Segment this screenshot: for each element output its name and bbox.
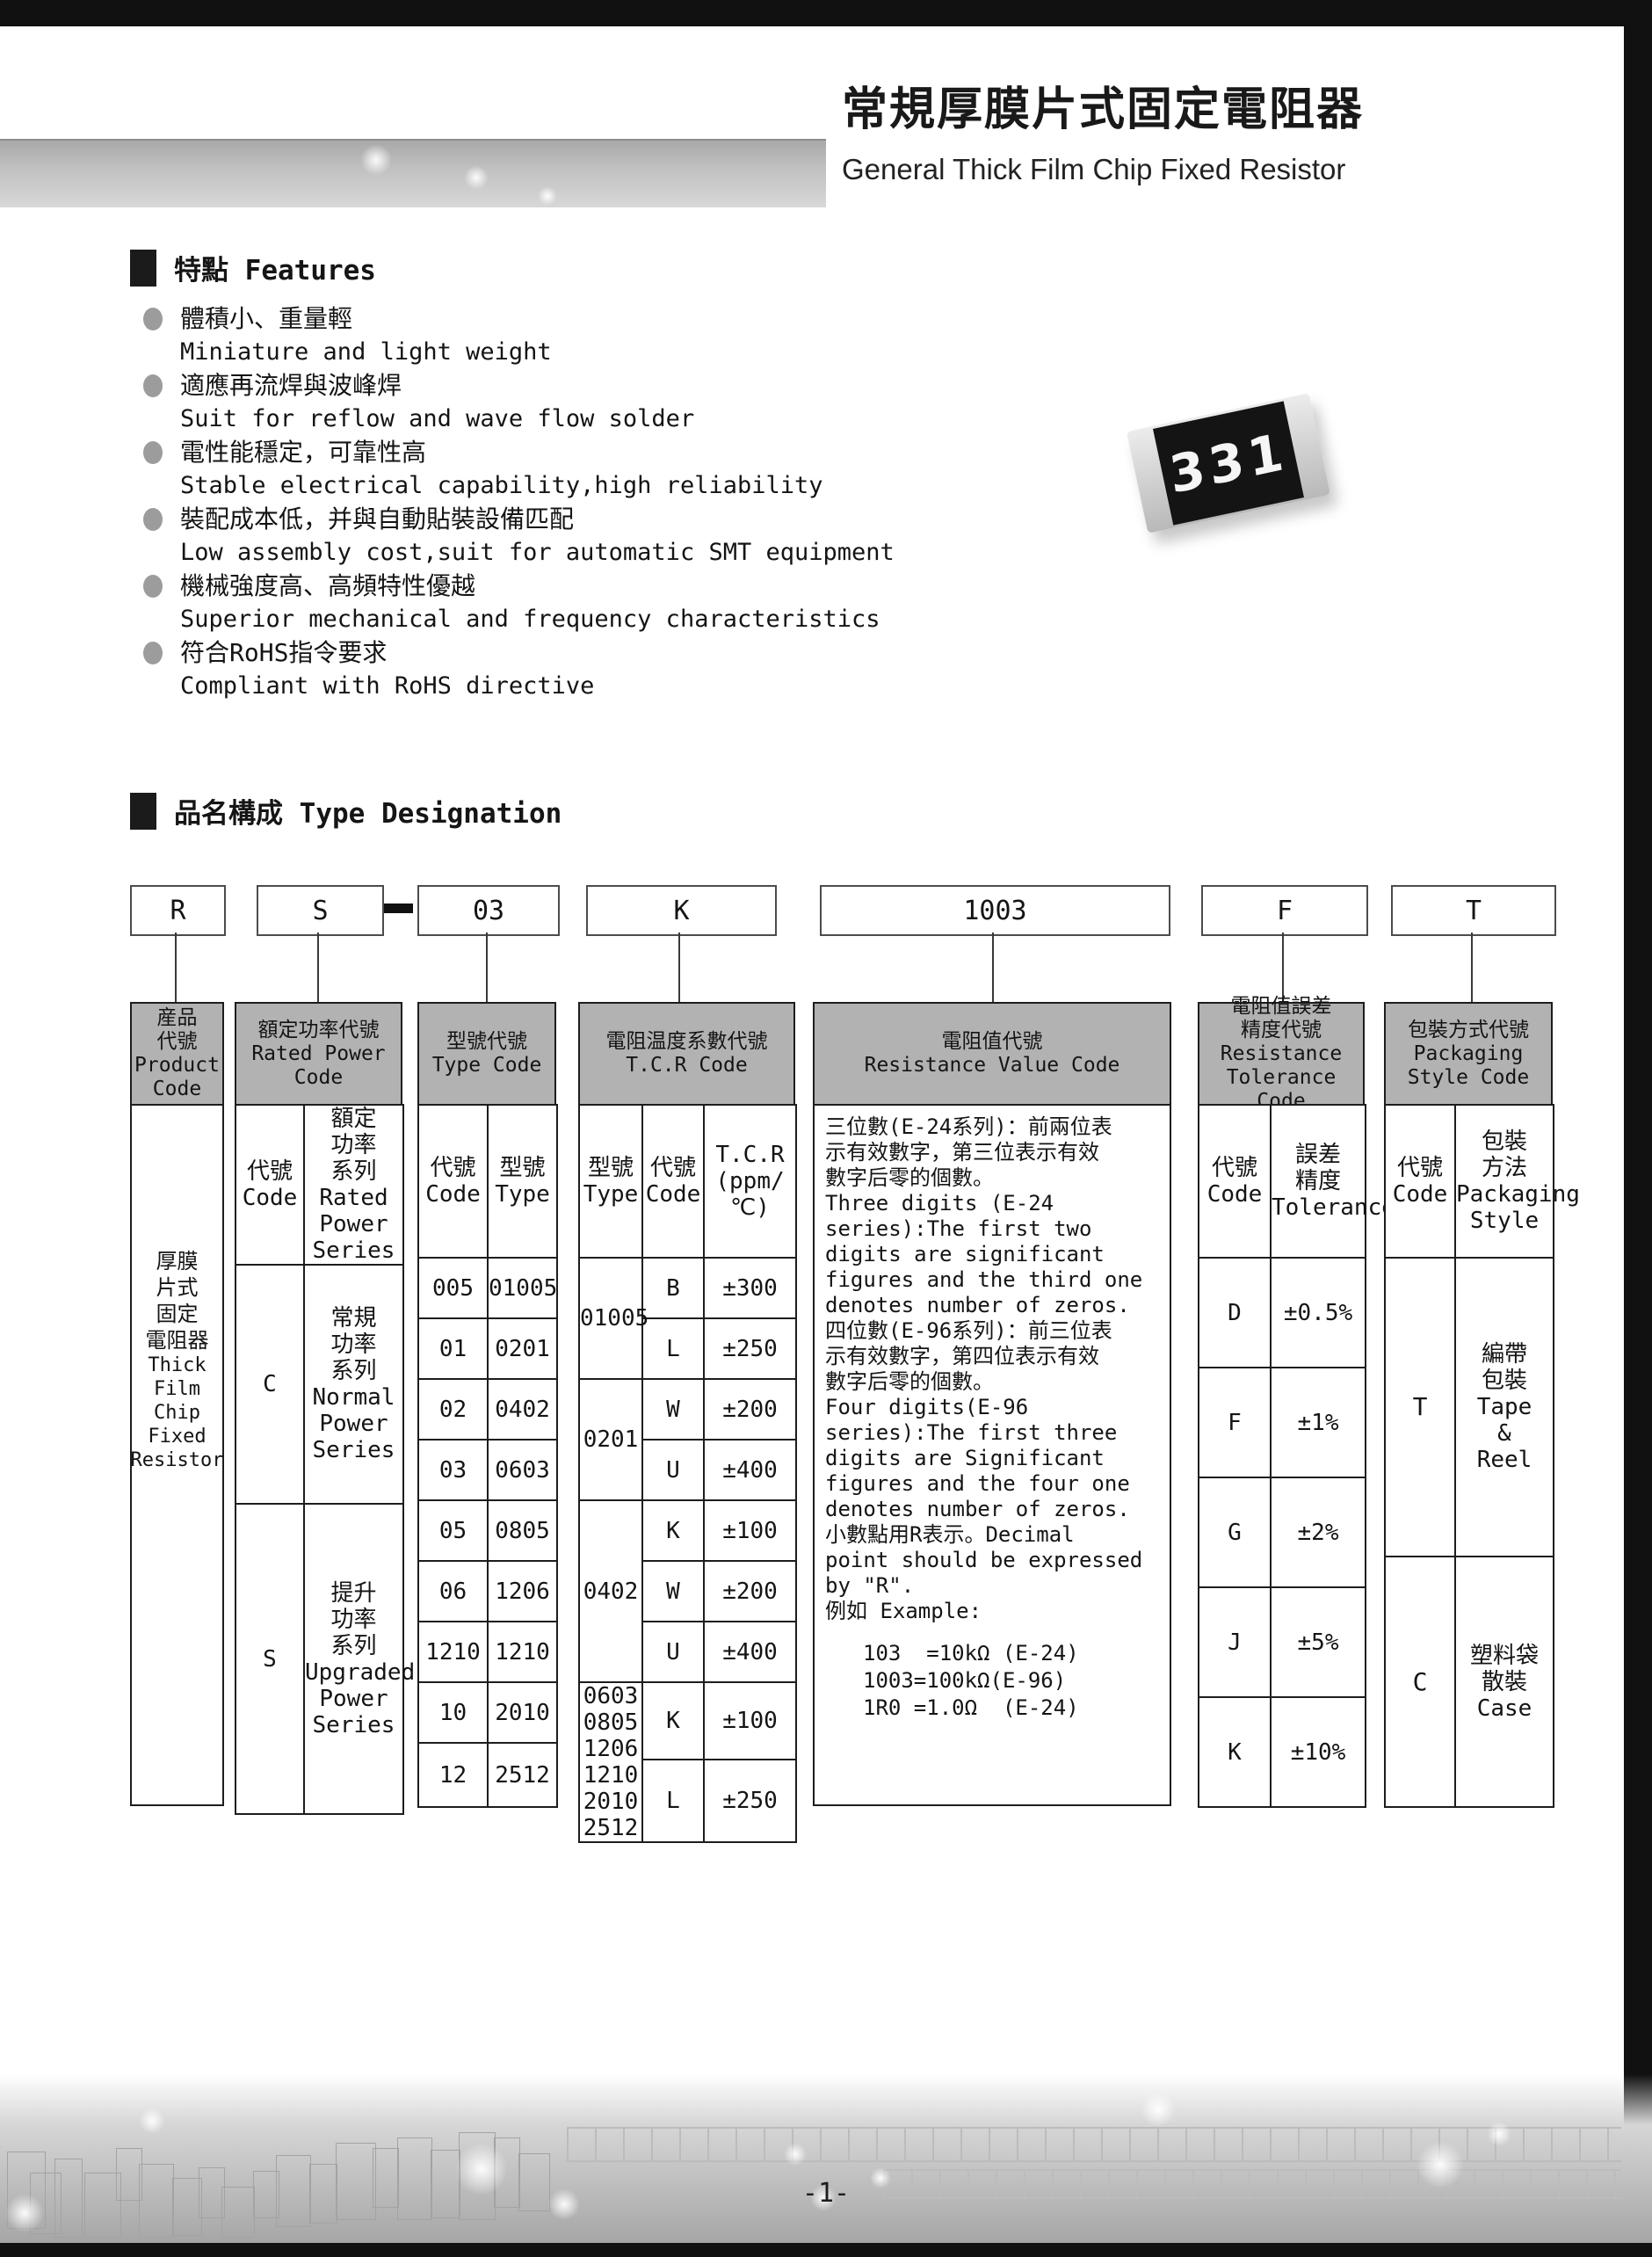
tcr-value-cell: ±100: [704, 1682, 796, 1760]
feature-zh: 適應再流焊與波峰焊: [180, 369, 1009, 403]
header-gradient-band: [0, 139, 826, 207]
type-code-cell: 01: [418, 1318, 488, 1379]
tcr-value-cell: ±400: [704, 1622, 796, 1682]
tcr-code-cell: U: [642, 1622, 704, 1682]
table-row: F±1%: [1199, 1368, 1366, 1477]
bullet-icon: [143, 374, 163, 397]
sparkle: [464, 165, 489, 190]
bullet-icon: [143, 642, 163, 664]
tol-sub-code: 代號 Code: [1199, 1105, 1271, 1258]
leader-line: [992, 933, 994, 1004]
decorative-square-row: [567, 2127, 1621, 2162]
features-heading-label: 特點 Features: [174, 248, 376, 287]
power-code-cell: C: [235, 1265, 304, 1504]
page-right-border: [1624, 0, 1652, 2257]
bullet-icon: [143, 508, 163, 531]
resistance-value-examples: 103 =10kΩ (E-24) 1003=100kΩ(E-96) 1R0 =1…: [863, 1640, 1170, 1722]
resistor-photo: 331: [1127, 393, 1330, 533]
tcr-table: 型號 Type 代號 Code T.C.R (ppm/℃) 01005 B ±3…: [578, 1104, 797, 1843]
tol-code-cell: K: [1199, 1697, 1271, 1807]
datasheet-page: 常規厚膜片式固定電阻器 General Thick Film Chip Fixe…: [0, 0, 1652, 2257]
pkg-sub-style: 包裝 方法 Packaging Style: [1455, 1105, 1554, 1258]
tol-sub-tol: 誤差 精度 Tolerance: [1271, 1105, 1366, 1258]
designation-heading-label: 品名構成 Type Designation: [174, 791, 562, 831]
feature-item: 符合RoHS指令要求 Compliant with RoHS directive: [130, 636, 1009, 703]
resistance-value-cell: 三位數(E-24系列)：前兩位表 示有效數字，第三位表示有效 數字后零的個數。 …: [813, 1104, 1171, 1806]
type-code-cell: 12: [418, 1743, 488, 1807]
tcr-value-cell: ±250: [704, 1760, 796, 1842]
page-subtitle: General Thick Film Chip Fixed Resistor: [842, 151, 1492, 188]
tcr-code-cell: B: [642, 1258, 704, 1318]
type-code-cell: 05: [418, 1500, 488, 1561]
tcr-code-cell: W: [642, 1379, 704, 1440]
feature-en: Low assembly cost,suit for automatic SMT…: [180, 536, 1009, 570]
type-code-cell: 10: [418, 1682, 488, 1743]
tcr-code-cell: K: [642, 1500, 704, 1561]
header-tolerance: 電阻值誤差 精度代號 Resistance Tolerance Code: [1198, 1002, 1365, 1106]
type-size-cell: 2512: [488, 1743, 557, 1807]
type-size-cell: 0805: [488, 1500, 557, 1561]
feature-en: Suit for reflow and wave flow solder: [180, 403, 1009, 436]
pkg-code-cell: T: [1385, 1258, 1455, 1557]
sparkle: [1487, 2122, 1511, 2146]
tol-value-cell: ±2%: [1271, 1477, 1366, 1587]
code-box-packaging: T: [1391, 885, 1556, 936]
table-row: D±0.5%: [1199, 1258, 1366, 1368]
rated-power-table: 代號 Code 額定 功率 系列 Rated Power Series C 常規…: [235, 1104, 404, 1815]
tcr-code-cell: K: [642, 1682, 704, 1760]
header-resistance-value: 電阻值代號 Resistance Value Code: [813, 1002, 1171, 1106]
feature-item: 適應再流焊與波峰焊 Suit for reflow and wave flow …: [130, 369, 1009, 436]
resistor-marking: 331: [1166, 421, 1292, 505]
code-box-type: 03: [417, 885, 560, 936]
table-row: 00501005: [418, 1258, 557, 1318]
table-row: 01005 B ±300: [579, 1258, 796, 1318]
tcr-type-cell: 0402: [579, 1500, 642, 1682]
tol-value-cell: ±1%: [1271, 1368, 1366, 1477]
tcr-type-cell: 01005: [579, 1258, 642, 1379]
designation-heading: 品名構成 Type Designation: [130, 791, 562, 831]
table-row: 型號 Type 代號 Code T.C.R (ppm/℃): [579, 1105, 796, 1258]
feature-zh: 機械強度高、高頻特性優越: [180, 570, 1009, 603]
sparkle: [1141, 2092, 1176, 2127]
code-box-tcr: K: [586, 885, 777, 936]
type-code-cell: 1210: [418, 1622, 488, 1682]
tol-code-cell: G: [1199, 1477, 1271, 1587]
type-code-cell: 06: [418, 1561, 488, 1622]
leader-line: [175, 933, 177, 1004]
tcr-code-cell: U: [642, 1440, 704, 1500]
type-code-cell: 005: [418, 1258, 488, 1318]
pkg-sub-code: 代號 Code: [1385, 1105, 1455, 1258]
tcr-sub-tcr: T.C.R (ppm/℃): [704, 1105, 796, 1258]
type-size-cell: 0201: [488, 1318, 557, 1379]
tcr-value-cell: ±100: [704, 1500, 796, 1561]
table-row: 020402: [418, 1379, 557, 1440]
table-row: 030603: [418, 1440, 557, 1500]
bullet-icon: [143, 441, 163, 464]
header-rated-power: 額定功率代號 Rated Power Code: [235, 1002, 402, 1106]
table-row: C 常規 功率 系列 Normal Power Series: [235, 1265, 403, 1504]
type-code-cell: 02: [418, 1379, 488, 1440]
table-row: 代號 Code 包裝 方法 Packaging Style: [1385, 1105, 1554, 1258]
section-marker-icon: [130, 250, 156, 287]
type-sub-type: 型號 Type: [488, 1105, 557, 1258]
sparkle: [360, 144, 392, 176]
resistor-ink-area: 331: [1153, 401, 1304, 525]
tol-code-cell: F: [1199, 1368, 1271, 1477]
code-box-product: R: [130, 885, 226, 936]
tcr-value-cell: ±200: [704, 1379, 796, 1440]
type-size-cell: 1206: [488, 1561, 557, 1622]
tol-value-cell: ±10%: [1271, 1697, 1366, 1807]
feature-item: 裝配成本低，并與自動貼裝設備匹配 Low assembly cost,suit …: [130, 503, 1009, 570]
type-size-cell: 01005: [488, 1258, 557, 1318]
power-code-cell: S: [235, 1504, 304, 1814]
tcr-code-cell: W: [642, 1561, 704, 1622]
resistance-value-text: 三位數(E-24系列)：前兩位表 示有效數字，第三位表示有效 數字后零的個數。 …: [815, 1106, 1170, 1624]
feature-zh: 電性能穩定，可靠性高: [180, 436, 1009, 469]
type-code-table: 代號 Code 型號 Type 00501005 010201 020402 0…: [417, 1104, 558, 1808]
pkg-style-cell: 編帶 包裝 Tape & Reel: [1455, 1258, 1554, 1557]
table-row: 0603 0805 1206 1210 2010 2512 K ±100: [579, 1682, 796, 1760]
table-row: 0201 W ±200: [579, 1379, 796, 1440]
feature-zh: 裝配成本低，并與自動貼裝設備匹配: [180, 503, 1009, 536]
table-row: C 塑料袋 散裝 Case: [1385, 1557, 1554, 1807]
leader-line: [1471, 933, 1473, 1004]
sparkle: [784, 2143, 807, 2166]
section-marker-icon: [130, 793, 156, 830]
code-box-value: 1003: [820, 885, 1170, 936]
feature-zh: 符合RoHS指令要求: [180, 636, 1009, 670]
tcr-type-cell: 0603 0805 1206 1210 2010 2512: [579, 1682, 642, 1842]
tcr-type-cell: 0201: [579, 1379, 642, 1500]
header-packaging: 包裝方式代號 Packaging Style Code: [1384, 1002, 1553, 1106]
code-box-power: S: [257, 885, 384, 936]
product-zh: 厚膜 片式 固定 電阻器: [146, 1248, 209, 1353]
feature-en: Compliant with RoHS directive: [180, 670, 1009, 703]
header-tcr-code: 電阻温度系數代號 T.C.R Code: [578, 1002, 795, 1106]
tcr-sub-code: 代號 Code: [642, 1105, 704, 1258]
feature-en: Superior mechanical and frequency charac…: [180, 603, 1009, 636]
tolerance-table: 代號 Code 誤差 精度 Tolerance D±0.5% F±1% G±2%…: [1198, 1104, 1366, 1808]
page-number: -1-: [0, 2178, 1652, 2209]
table-row: S 提升 功率 系列 Upgraded Power Series: [235, 1504, 403, 1814]
power-series-cell: 提升 功率 系列 Upgraded Power Series: [304, 1504, 403, 1814]
table-row: 0402 K ±100: [579, 1500, 796, 1561]
packaging-table: 代號 Code 包裝 方法 Packaging Style T 編帶 包裝 Ta…: [1384, 1104, 1554, 1808]
bullet-icon: [143, 308, 163, 330]
table-row: K±10%: [1199, 1697, 1366, 1807]
tol-value-cell: ±0.5%: [1271, 1258, 1366, 1368]
product-en: Thick Film Chip Fixed Resistor: [131, 1353, 224, 1472]
leader-line: [1282, 933, 1284, 1004]
tcr-code-cell: L: [642, 1760, 704, 1842]
type-size-cell: 2010: [488, 1682, 557, 1743]
tcr-value-cell: ±400: [704, 1440, 796, 1500]
sparkle: [139, 2108, 165, 2134]
power-sub-series: 額定 功率 系列 Rated Power Series: [304, 1105, 403, 1265]
leader-line: [317, 933, 319, 1004]
feature-en: Miniature and light weight: [180, 336, 1009, 369]
tcr-code-cell: L: [642, 1318, 704, 1379]
power-series-cell: 常規 功率 系列 Normal Power Series: [304, 1265, 403, 1504]
tol-value-cell: ±5%: [1271, 1587, 1366, 1697]
leader-line: [678, 933, 680, 1004]
pkg-style-cell: 塑料袋 散裝 Case: [1455, 1557, 1554, 1807]
tcr-value-cell: ±300: [704, 1258, 796, 1318]
table-row: 010201: [418, 1318, 557, 1379]
feature-item: 電性能穩定，可靠性高 Stable electrical capability,…: [130, 436, 1009, 503]
table-row: 代號 Code 型號 Type: [418, 1105, 557, 1258]
table-row: 代號 Code 額定 功率 系列 Rated Power Series: [235, 1105, 403, 1265]
table-row: T 編帶 包裝 Tape & Reel: [1385, 1258, 1554, 1557]
table-row: G±2%: [1199, 1477, 1366, 1587]
features-heading: 特點 Features: [130, 248, 376, 287]
table-row: J±5%: [1199, 1587, 1366, 1697]
feature-item: 機械強度高、高頻特性優越 Superior mechanical and fre…: [130, 570, 1009, 636]
type-size-cell: 1210: [488, 1622, 557, 1682]
table-row: 102010: [418, 1682, 557, 1743]
tcr-sub-type: 型號 Type: [579, 1105, 642, 1258]
type-code-cell: 03: [418, 1440, 488, 1500]
feature-item: 體積小、重量輕 Miniature and light weight: [130, 302, 1009, 369]
leader-line: [486, 933, 488, 1004]
feature-en: Stable electrical capability,high reliab…: [180, 469, 1009, 503]
tcr-value-cell: ±250: [704, 1318, 796, 1379]
sparkle: [538, 186, 557, 206]
power-sub-code: 代號 Code: [235, 1105, 304, 1265]
table-row: 代號 Code 誤差 精度 Tolerance: [1199, 1105, 1366, 1258]
tcr-value-cell: ±200: [704, 1561, 796, 1622]
type-sub-code: 代號 Code: [418, 1105, 488, 1258]
table-row: 122512: [418, 1743, 557, 1807]
tol-code-cell: D: [1199, 1258, 1271, 1368]
page-title: 常規厚膜片式固定電阻器: [842, 83, 1474, 137]
header-product-code: 産品 代號 Product Code: [130, 1002, 224, 1106]
table-row: 061206: [418, 1561, 557, 1622]
tol-code-cell: J: [1199, 1587, 1271, 1697]
page-bottom-border: [0, 2243, 1652, 2257]
pkg-code-cell: C: [1385, 1557, 1455, 1807]
table-row: 12101210: [418, 1622, 557, 1682]
type-size-cell: 0603: [488, 1440, 557, 1500]
page-top-border: [0, 0, 1652, 26]
header-type-code: 型號代號 Type Code: [417, 1002, 556, 1106]
code-box-tolerance: F: [1201, 885, 1368, 936]
bullet-icon: [143, 575, 163, 598]
type-size-cell: 0402: [488, 1379, 557, 1440]
product-body-cell: 厚膜 片式 固定 電阻器 Thick Film Chip Fixed Resis…: [130, 1104, 224, 1806]
code-separator-dash: [384, 904, 413, 913]
feature-zh: 體積小、重量輕: [180, 302, 1009, 336]
table-row: 050805: [418, 1500, 557, 1561]
